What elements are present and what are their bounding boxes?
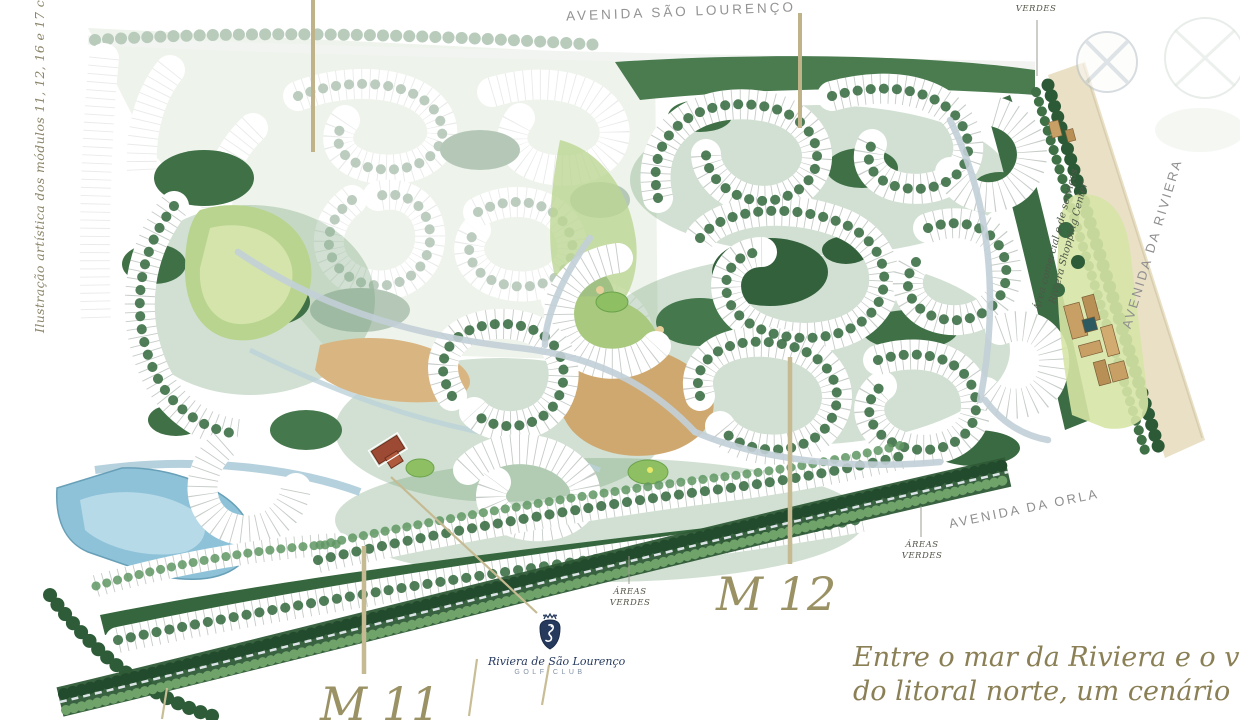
areas-verdes-line1: ÁREAS — [592, 587, 668, 598]
golf-club-crest-icon — [532, 612, 568, 654]
areas-verdes-line1: ÁREAS — [884, 540, 960, 551]
masterplan-map: AVENIDA SÃO LOURENÇO Ilustração artístic… — [0, 0, 1240, 720]
masterplan-illustration — [0, 0, 1240, 720]
tagline: Entre o mar da Riviera e o verde do lito… — [853, 641, 1240, 708]
areas-verdes-line2: VERDES — [884, 551, 960, 562]
areas-verdes-line2: VERDES — [998, 4, 1074, 15]
tagline-line1: Entre o mar da Riviera e o verde — [853, 641, 1240, 675]
areas-verdes-line2: VERDES — [592, 598, 668, 609]
golf-club-type: GOLF CLUB — [488, 669, 612, 676]
areas-verdes-label-top: ÁREAS VERDES — [998, 0, 1074, 14]
golf-club-name: Riviera de São Lourenço — [488, 655, 612, 668]
areas-verdes-label-mid: ÁREAS VERDES — [884, 540, 960, 561]
artistic-caption: Ilustração artística dos módulos 11, 12,… — [32, 0, 47, 333]
module-12-label: M 12 — [716, 567, 836, 621]
golf-club-logo: Riviera de São Lourenço GOLF CLUB — [488, 612, 612, 676]
module-11-label: M 11 — [320, 677, 440, 720]
areas-verdes-label-low: ÁREAS VERDES — [592, 587, 668, 608]
tagline-line2: do litoral norte, um cenário único. — [853, 675, 1240, 709]
